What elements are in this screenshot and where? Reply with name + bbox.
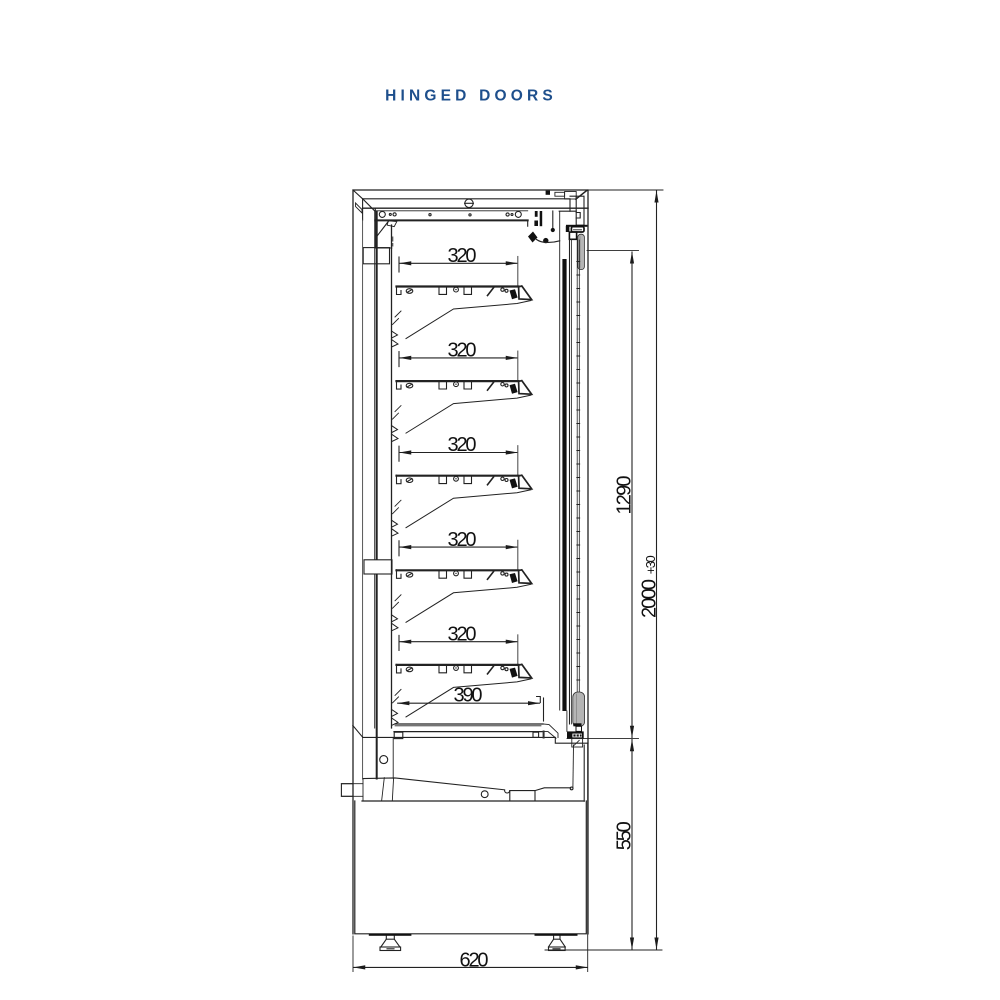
- svg-text:HINGED DOORS: HINGED DOORS: [385, 88, 557, 105]
- svg-text:1290: 1290: [614, 476, 636, 515]
- svg-text:620: 620: [460, 950, 489, 972]
- svg-text:550: 550: [614, 821, 636, 850]
- svg-text:2000: 2000: [638, 579, 660, 618]
- svg-text:+30: +30: [643, 555, 658, 574]
